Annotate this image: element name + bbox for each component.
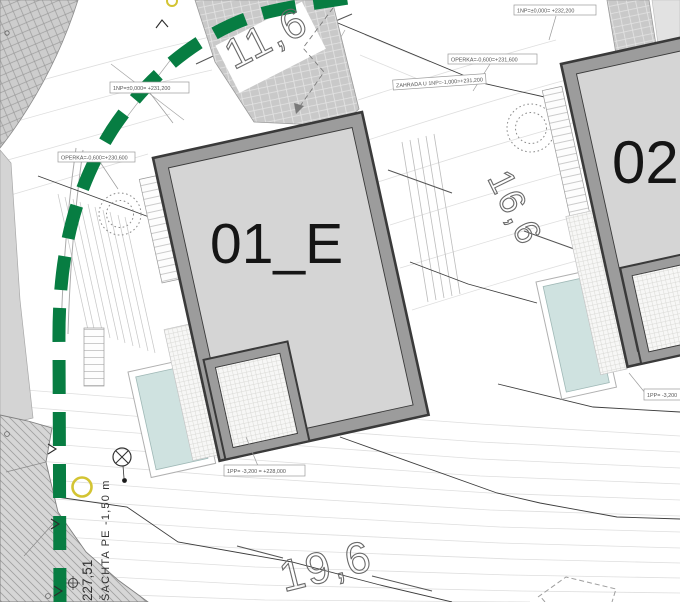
site-plan-canvas: 1NP=±0,000= +231,200 OPERKA=-0,600=+230,…: [0, 0, 680, 602]
label-b01-operka: OPERKA=-0,600=+230,600: [61, 156, 128, 162]
dimension-bottom: 19,6: [275, 532, 378, 602]
label-b01-1np: 1NP=±0,000= +231,200: [113, 86, 170, 92]
building-01-label: 01_E: [210, 212, 343, 276]
retaining-wall-curves: [61, 148, 83, 334]
label-b02-1pp: 1PP= -3,200: [647, 393, 677, 399]
terrace-wall-lines: [402, 134, 460, 302]
building-02-label: 02: [612, 129, 679, 196]
utility-shaft-symbol: [113, 448, 131, 478]
survey-elevation-text: 227,51: [80, 560, 95, 601]
tiled-path-top-right-light: [652, 0, 680, 44]
label-b01-1pp: 1PP= -3,200 = +228,000: [227, 469, 286, 475]
yellow-marker-top: [167, 0, 177, 6]
shaft-note-text: ŠACHTA PE -1,50 m: [99, 479, 112, 601]
site-plan-drawing: 1NP=±0,000= +231,200 OPERKA=-0,600=+230,…: [0, 0, 680, 602]
stairs-small: [84, 328, 104, 386]
point-marker-dot: [122, 478, 127, 483]
yellow-marker-circle: [73, 478, 92, 497]
dimension-middle: 16,6: [480, 164, 551, 252]
slope-sliver-left: [0, 150, 33, 426]
sidewalk-hatch-top-left: [0, 0, 78, 148]
label-b02-operka: OPERKA=-0,600=+231,600: [451, 58, 518, 64]
slope-wedge-bottom-left: [0, 415, 148, 602]
label-b02-1np: 1NP=±0,000= +232,200: [517, 9, 574, 15]
dashed-outline-bottom: [538, 577, 616, 602]
